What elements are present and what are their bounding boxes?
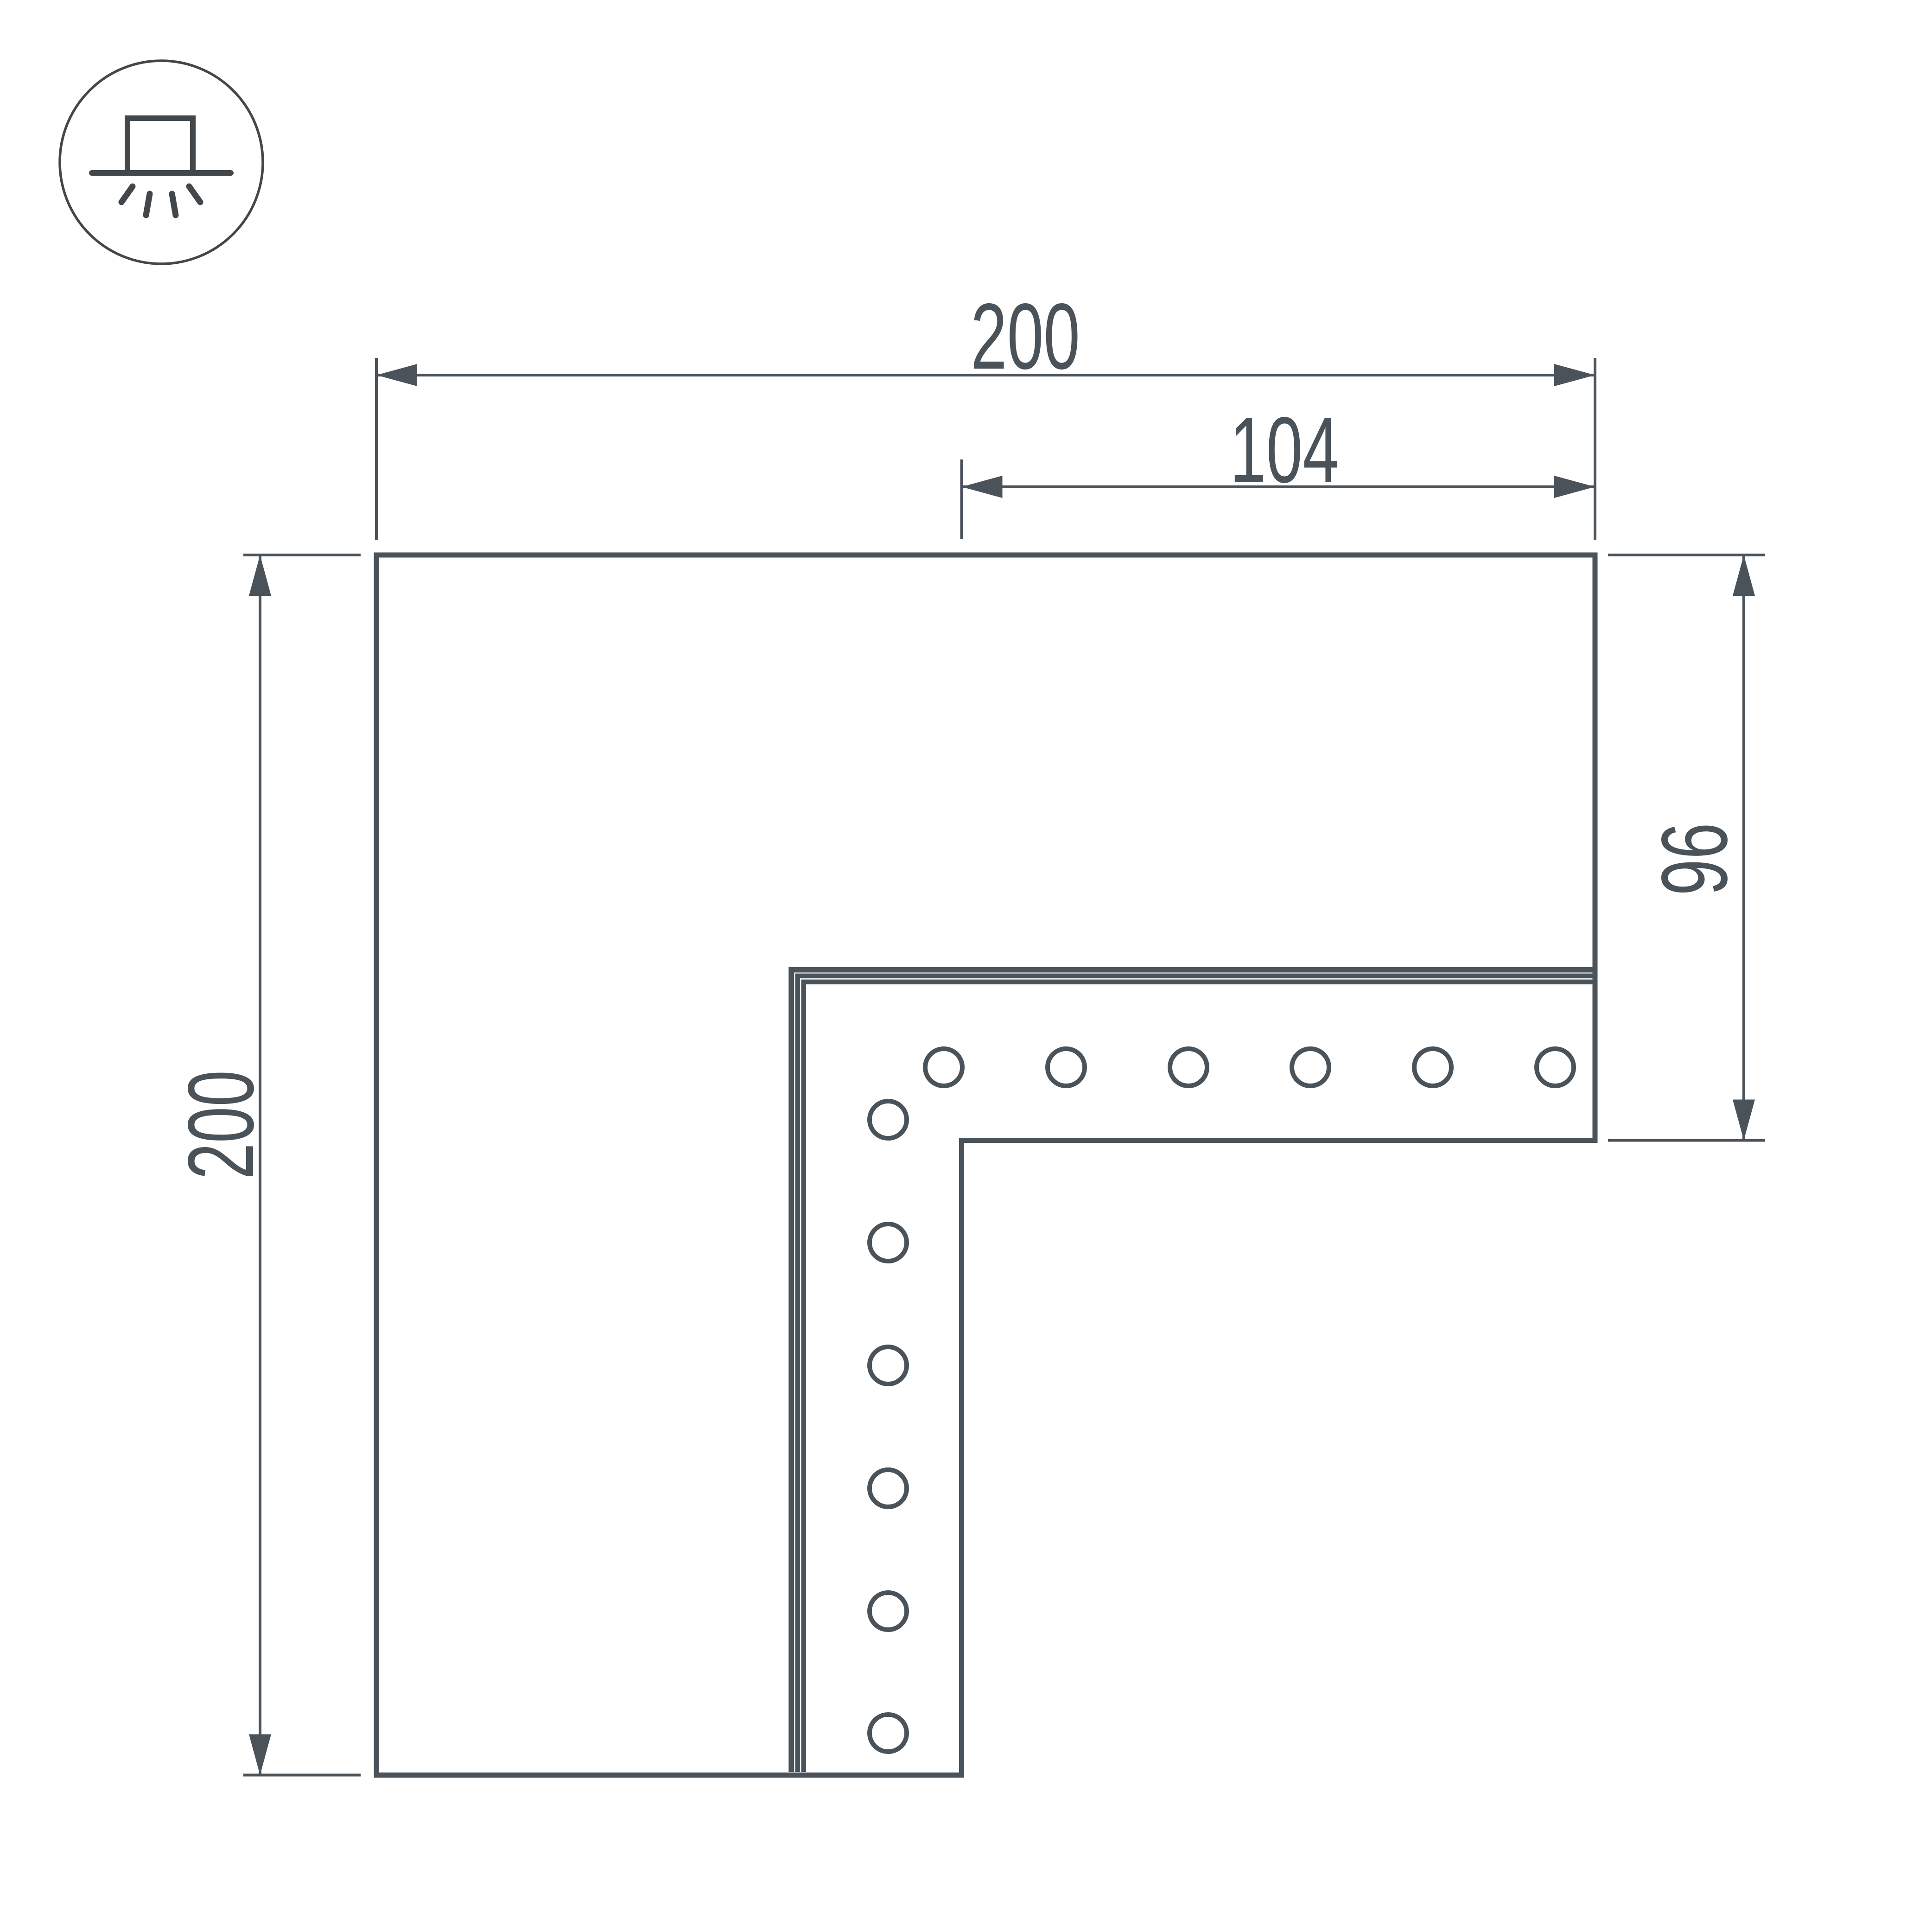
svg-text:104: 104 <box>1230 397 1339 502</box>
svg-text:200: 200 <box>168 1070 273 1180</box>
svg-text:96: 96 <box>1642 823 1747 895</box>
svg-text:200: 200 <box>971 284 1080 389</box>
